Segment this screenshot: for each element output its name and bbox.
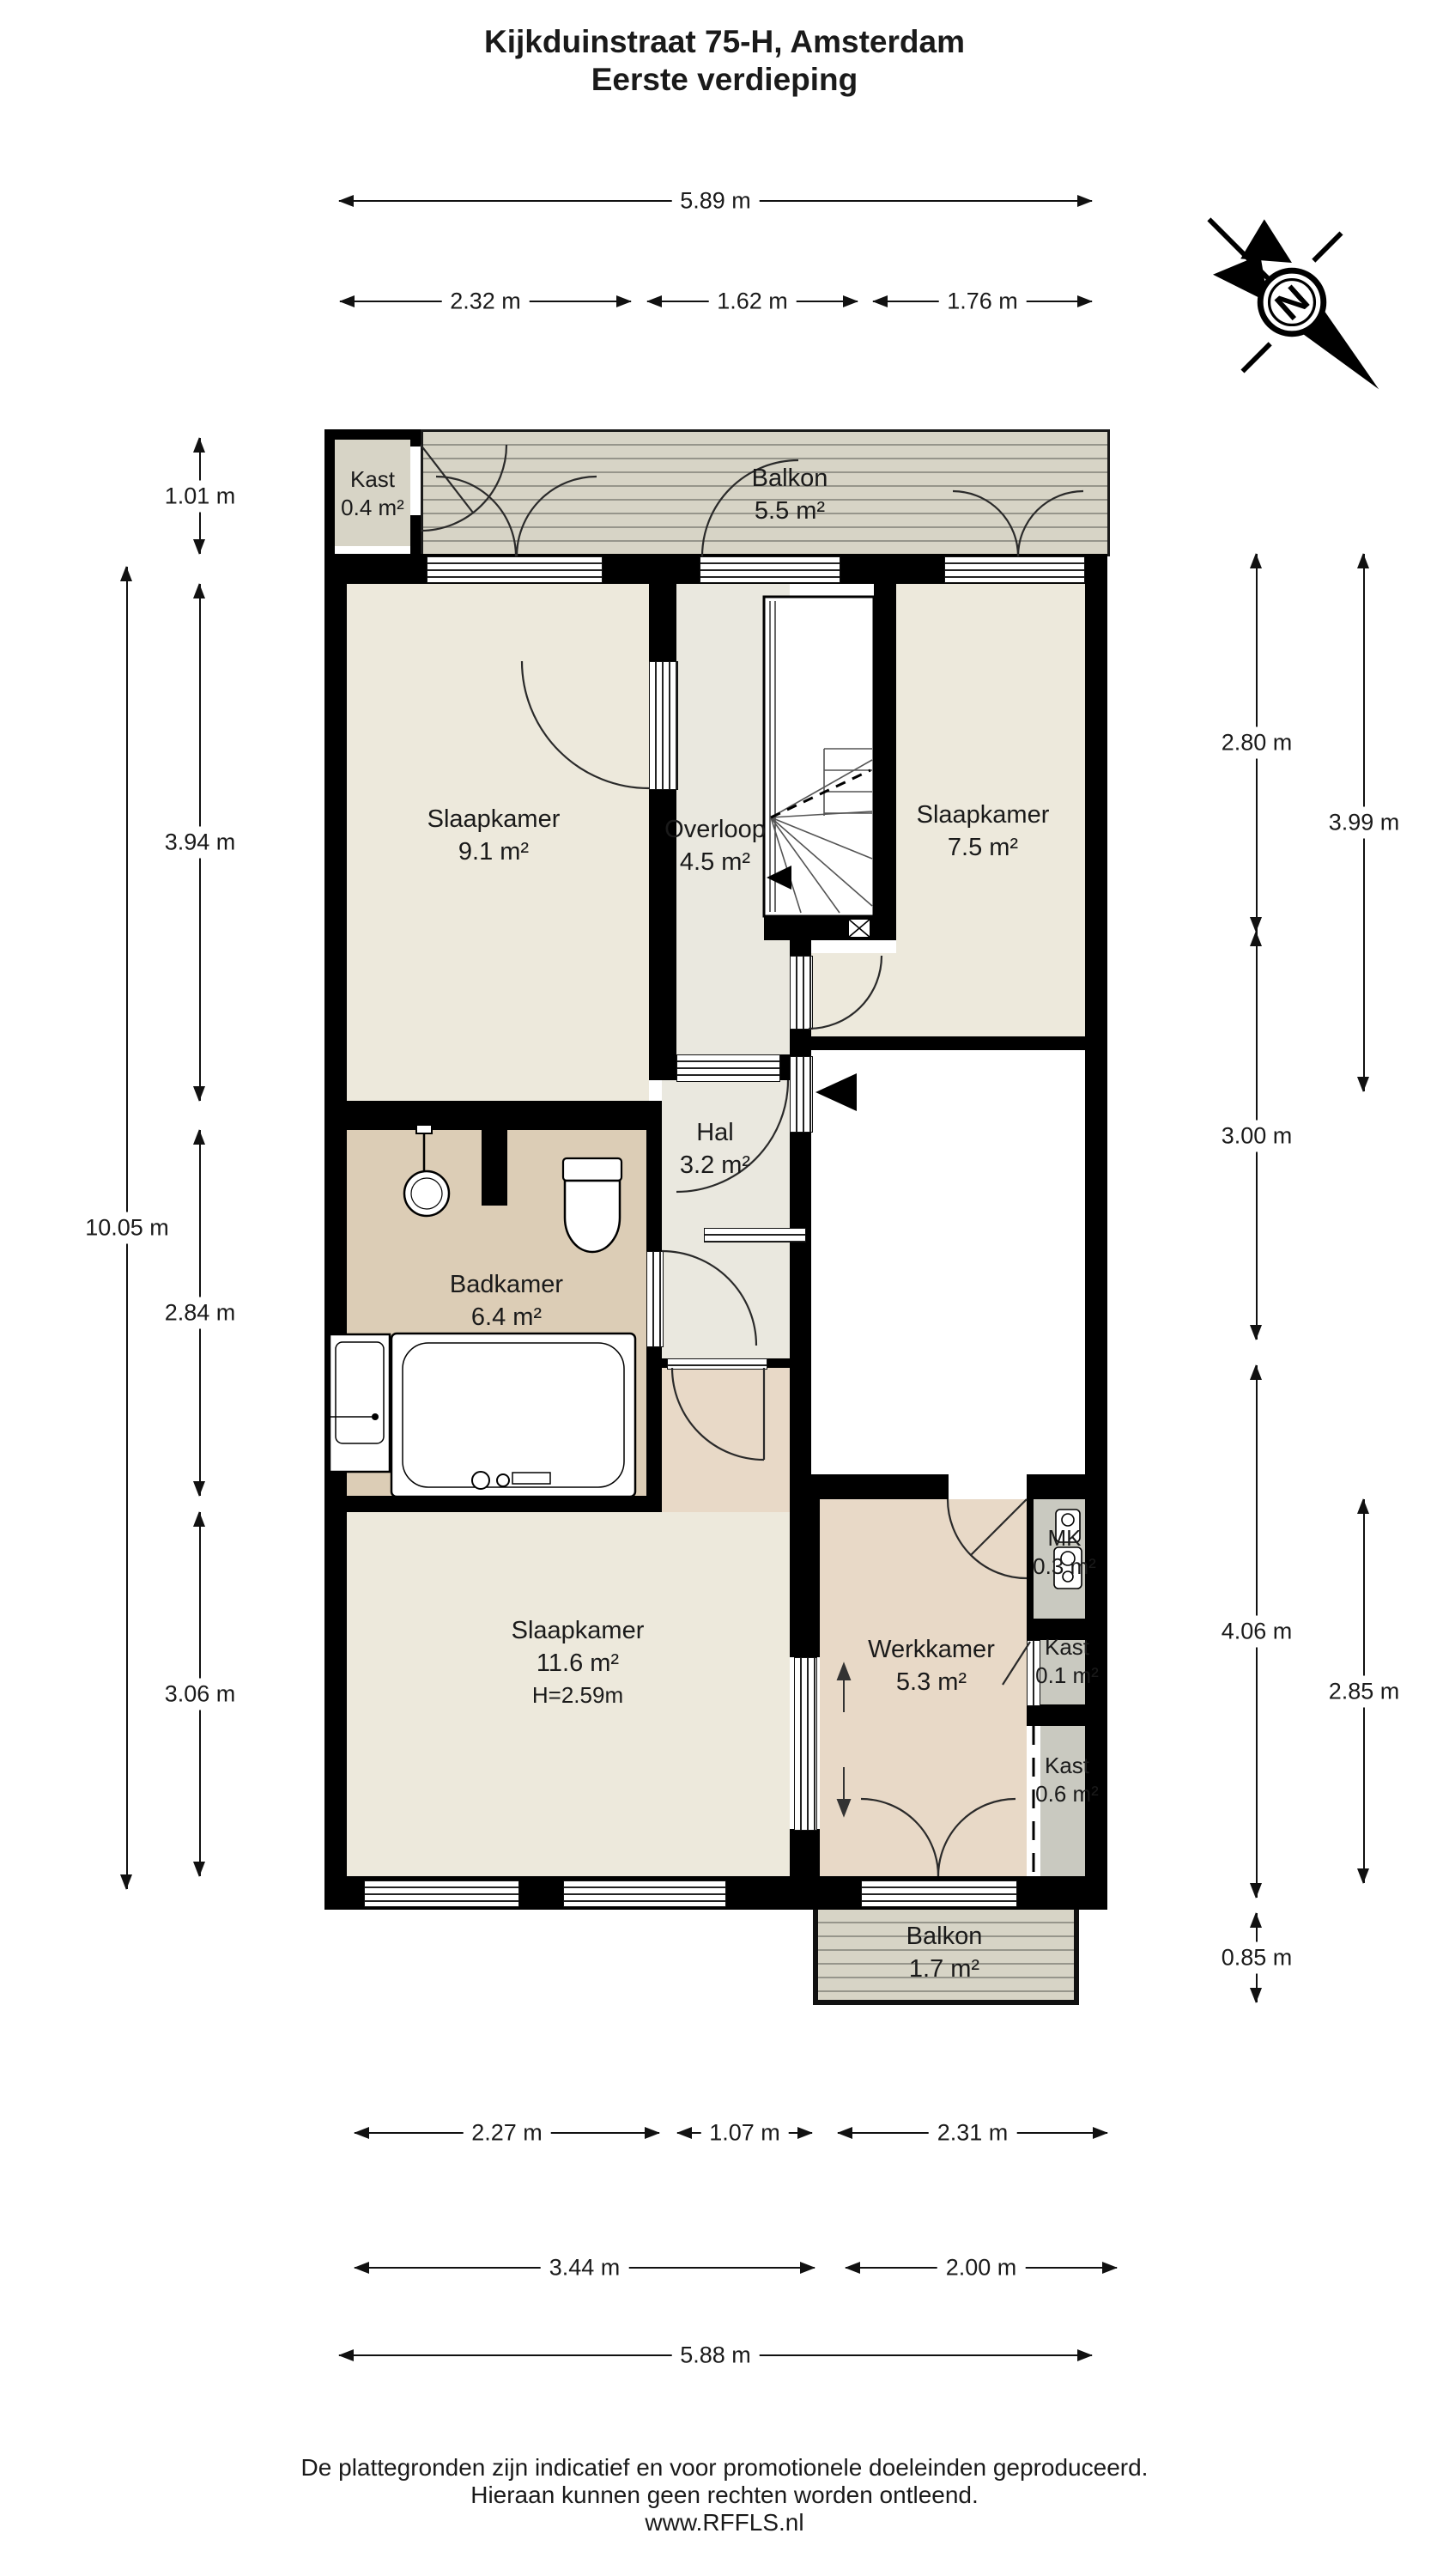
dim-bottom-total: 5.88 m bbox=[339, 2354, 1092, 2356]
label-kast-mid: Kast 0.6 m² bbox=[1035, 1752, 1099, 1807]
washbasin-icon bbox=[330, 1334, 390, 1472]
room-name: Hal bbox=[680, 1116, 750, 1149]
door-leaf bbox=[971, 1499, 1027, 1555]
dim-right-d: 0.85 m bbox=[1256, 1913, 1258, 2002]
dim-label: 1.62 m bbox=[708, 289, 797, 315]
room-area: 0.1 m² bbox=[1035, 1662, 1099, 1690]
door-leaf bbox=[421, 445, 473, 513]
dim-left-a: 1.01 m bbox=[199, 438, 201, 554]
dim-right-outer-b: 2.85 m bbox=[1363, 1499, 1365, 1883]
label-balkon-bottom: Balkon 1.7 m² bbox=[906, 1920, 983, 1986]
dim-label: 1.76 m bbox=[938, 289, 1027, 315]
sink-tap-icon bbox=[416, 1125, 432, 1133]
room-name: MK bbox=[1033, 1524, 1096, 1552]
room-area: 0.4 m² bbox=[341, 494, 404, 522]
label-slaapkamer-1: Slaapkamer 9.1 m² bbox=[427, 803, 561, 869]
dim-label: 2.85 m bbox=[1324, 1675, 1405, 1707]
shaft-symbol-icon bbox=[848, 919, 870, 938]
door-arc-hal-vestibule bbox=[672, 1368, 764, 1460]
room-area: 6.4 m² bbox=[450, 1301, 563, 1334]
entrance-arrow-icon bbox=[815, 1073, 857, 1111]
room-name: Balkon bbox=[752, 462, 828, 495]
dim-label: 3.44 m bbox=[541, 2255, 629, 2281]
dim-label: 4.06 m bbox=[1216, 1616, 1298, 1648]
floor-plan: Kijkduinstraat 75-H, Amsterdam Eerste ve… bbox=[0, 0, 1449, 2576]
label-slaapkamer-2: Slaapkamer 7.5 m² bbox=[917, 799, 1050, 865]
room-name: Balkon bbox=[906, 1920, 983, 1953]
room-name: Slaapkamer bbox=[512, 1614, 645, 1647]
dim-label: 3.99 m bbox=[1324, 807, 1405, 839]
dim-right-b: 3.00 m bbox=[1256, 932, 1258, 1340]
door-arc-balcony-bottom-l bbox=[861, 1799, 938, 1876]
dim-bottom-c: 2.31 m bbox=[838, 2132, 1107, 2134]
dim-left-b: 3.94 m bbox=[199, 584, 201, 1101]
wall-stub bbox=[482, 1130, 507, 1206]
dim-right-c: 4.06 m bbox=[1256, 1365, 1258, 1898]
room-name: Slaapkamer bbox=[917, 799, 1050, 831]
door-leaf-kast-small bbox=[1003, 1642, 1030, 1685]
room-area: 5.5 m² bbox=[752, 495, 828, 527]
dim-label: 2.00 m bbox=[937, 2255, 1026, 2281]
dim-right-outer-a: 3.99 m bbox=[1363, 554, 1365, 1091]
room-area: 3.2 m² bbox=[680, 1149, 750, 1182]
dim-top-c: 1.76 m bbox=[873, 301, 1092, 302]
dim-label: 3.94 m bbox=[160, 827, 241, 859]
dim-top-b: 1.62 m bbox=[647, 301, 858, 302]
room-area: 7.5 m² bbox=[917, 831, 1050, 864]
dim-bottom-b: 1.07 m bbox=[677, 2132, 812, 2134]
door-arc-badkamer bbox=[662, 1251, 756, 1346]
door-arc-balcony-left bbox=[436, 477, 516, 556]
dim-left-d: 3.06 m bbox=[199, 1512, 201, 1876]
room-name: Kast bbox=[1035, 1752, 1099, 1780]
staircase bbox=[764, 597, 874, 916]
label-hal: Hal 3.2 m² bbox=[680, 1116, 750, 1182]
room-area: 9.1 m² bbox=[427, 835, 561, 868]
room-name: Slaapkamer bbox=[427, 803, 561, 835]
door-arc-slaapkamer-1 bbox=[522, 661, 649, 788]
toilet-tank-icon bbox=[563, 1158, 621, 1181]
dim-bottom-d: 3.44 m bbox=[355, 2267, 815, 2269]
toilet-icon bbox=[565, 1181, 620, 1252]
dim-label: 2.27 m bbox=[463, 2120, 551, 2147]
dim-bottom-e: 2.00 m bbox=[846, 2267, 1117, 2269]
dim-label: 5.89 m bbox=[671, 188, 760, 215]
dim-label: 3.06 m bbox=[160, 1679, 241, 1710]
label-balkon-top: Balkon 5.5 m² bbox=[752, 462, 828, 528]
dim-top-a: 2.32 m bbox=[340, 301, 631, 302]
label-slaapkamer-3: Slaapkamer 11.6 m² H=2.59m bbox=[512, 1614, 645, 1710]
door-arc-balcony-right bbox=[953, 491, 1018, 556]
dim-label: 1.07 m bbox=[700, 2120, 789, 2147]
room-name: Werkkamer bbox=[868, 1633, 995, 1666]
dim-left-c: 2.84 m bbox=[199, 1130, 201, 1496]
sliding-door-arrows-icon bbox=[838, 1664, 850, 1815]
dim-label: 0.85 m bbox=[1216, 1942, 1298, 1974]
room-area: 1.7 m² bbox=[906, 1953, 983, 1985]
room-name: Kast bbox=[1035, 1633, 1099, 1662]
door-arc-balcony-bottom-r bbox=[938, 1799, 1016, 1876]
door-arc-kast-top bbox=[421, 445, 506, 531]
plan-graphics: N bbox=[0, 0, 1449, 2576]
dim-label: 2.32 m bbox=[441, 289, 530, 315]
label-kast-top: Kast 0.4 m² bbox=[341, 465, 404, 521]
room-area: 4.5 m² bbox=[664, 846, 766, 878]
dim-label: 1.01 m bbox=[160, 480, 241, 512]
compass-icon: N bbox=[1209, 219, 1379, 389]
label-badkamer: Badkamer 6.4 m² bbox=[450, 1268, 563, 1334]
dim-left-total: 10.05 m bbox=[126, 567, 128, 1889]
room-name: Overloop bbox=[664, 813, 766, 846]
dim-label: 10.05 m bbox=[80, 1212, 174, 1244]
dim-top-total: 5.89 m bbox=[339, 200, 1092, 202]
door-arc-slaapkamer-2 bbox=[809, 956, 882, 1029]
dim-label: 5.88 m bbox=[671, 2342, 760, 2369]
room-name: Badkamer bbox=[450, 1268, 563, 1301]
label-mk: MK 0.3 m² bbox=[1033, 1524, 1096, 1580]
label-werkkamer: Werkkamer 5.3 m² bbox=[868, 1633, 995, 1699]
room-area: 0.6 m² bbox=[1035, 1780, 1099, 1808]
door-arc-balcony-right2 bbox=[1018, 491, 1083, 556]
room-area: 5.3 m² bbox=[868, 1666, 995, 1698]
room-area: 0.3 m² bbox=[1033, 1552, 1096, 1581]
dim-label: 3.00 m bbox=[1216, 1120, 1298, 1151]
dim-label: 2.84 m bbox=[160, 1297, 241, 1329]
room-ceiling-height: H=2.59m bbox=[512, 1680, 645, 1710]
door-arc-balcony-left2 bbox=[517, 477, 597, 556]
room-name: Kast bbox=[341, 465, 404, 494]
dim-label: 2.31 m bbox=[929, 2120, 1017, 2147]
label-overloop: Overloop 4.5 m² bbox=[664, 813, 766, 879]
room-area: 11.6 m² bbox=[512, 1647, 645, 1680]
dim-bottom-a: 2.27 m bbox=[355, 2132, 659, 2134]
dim-right-a: 2.80 m bbox=[1256, 554, 1258, 932]
label-kast-small: Kast 0.1 m² bbox=[1035, 1633, 1099, 1689]
dim-label: 2.80 m bbox=[1216, 727, 1298, 759]
